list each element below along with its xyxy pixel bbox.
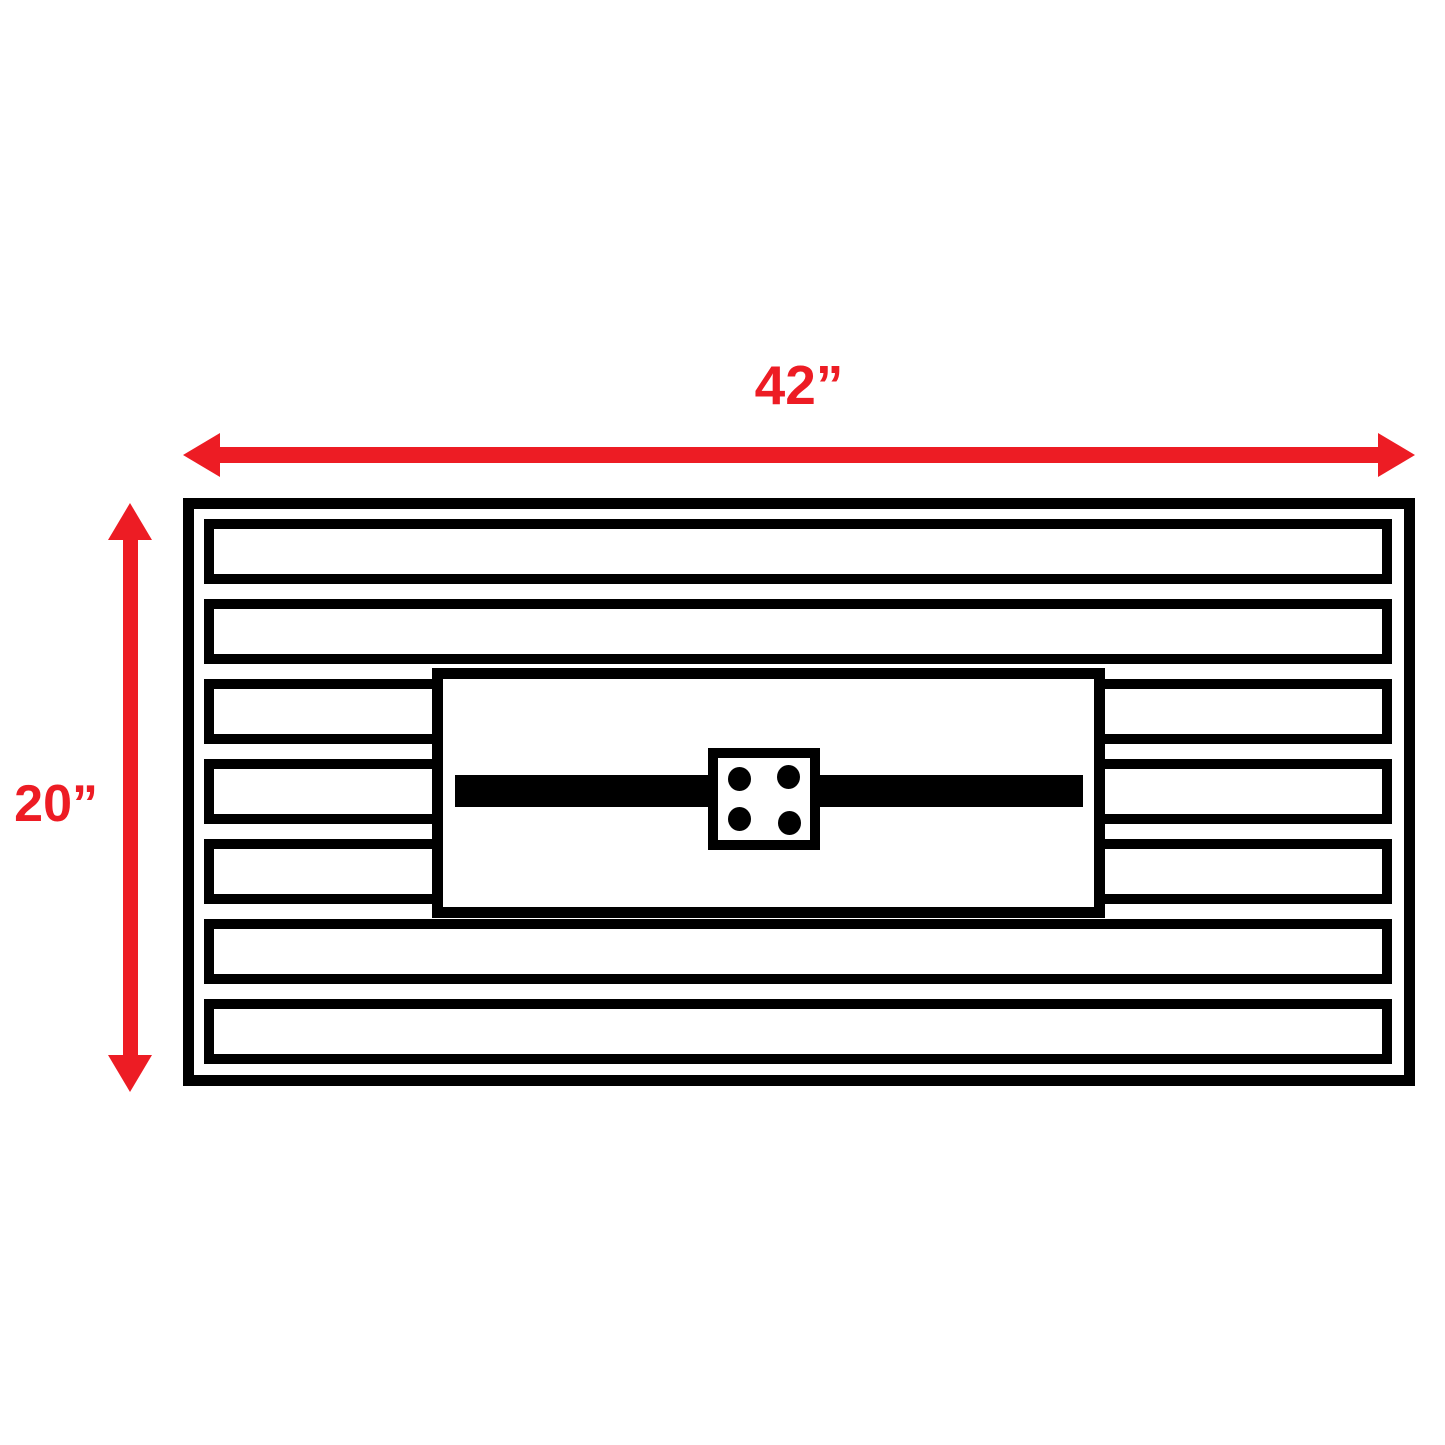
arrowhead-right-icon — [1378, 433, 1415, 477]
width-dimension-arrow-line — [212, 447, 1382, 463]
width-dimension-label: 42” — [183, 358, 1415, 413]
igniter-dot — [728, 767, 751, 791]
height-dimension-label: 20” — [0, 778, 98, 830]
igniter-dot — [778, 811, 801, 835]
table-slat — [204, 599, 1392, 664]
table-slat — [204, 679, 470, 744]
table-slat — [204, 999, 1392, 1064]
table-slat — [1085, 679, 1392, 744]
height-dimension-arrow-line — [123, 530, 138, 1062]
table-slat — [204, 919, 1392, 984]
table-slat — [1085, 759, 1392, 824]
table-slat — [1085, 839, 1392, 904]
dimension-diagram: 42” 20” — [0, 0, 1445, 1445]
igniter-dot — [728, 807, 751, 831]
igniter-box — [708, 748, 820, 850]
igniter-dot — [777, 765, 800, 789]
arrowhead-left-icon — [183, 433, 220, 477]
table-slat — [204, 759, 470, 824]
table-slat — [204, 839, 470, 904]
table-slat — [204, 519, 1392, 584]
arrowhead-up-icon — [108, 503, 152, 540]
arrowhead-down-icon — [108, 1055, 152, 1092]
